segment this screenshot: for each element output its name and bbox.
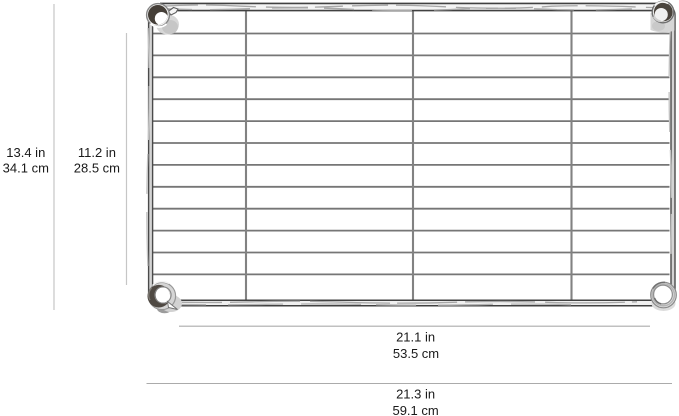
svg-text:59.1 cm: 59.1 cm xyxy=(392,403,438,416)
svg-text:11.2 in: 11.2 in xyxy=(78,145,116,160)
svg-text:34.1 cm: 34.1 cm xyxy=(3,161,49,176)
svg-text:53.5 cm: 53.5 cm xyxy=(393,346,439,361)
svg-text:21.1 in: 21.1 in xyxy=(396,330,435,345)
svg-text:21.3 in: 21.3 in xyxy=(396,387,435,402)
svg-text:13.4 in: 13.4 in xyxy=(6,145,45,160)
svg-text:28.5 cm: 28.5 cm xyxy=(74,161,120,176)
